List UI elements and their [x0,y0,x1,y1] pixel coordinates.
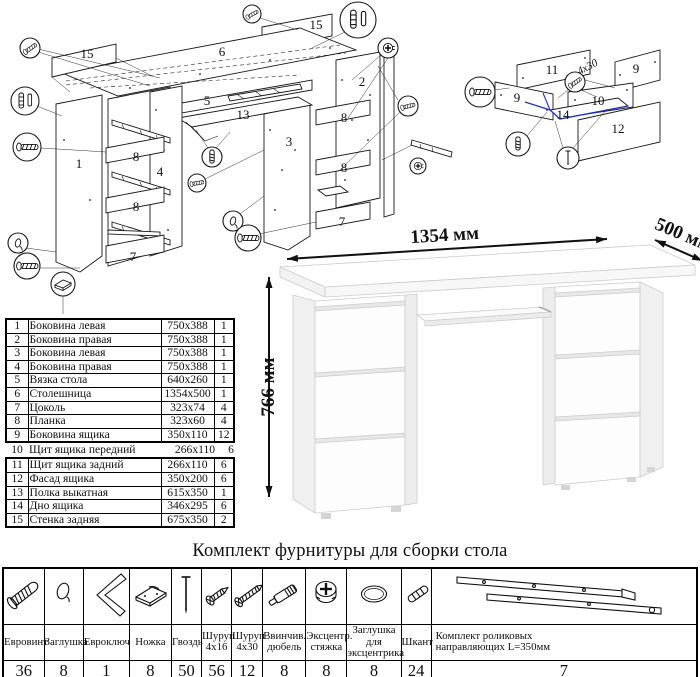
svg-text:9: 9 [514,90,521,105]
parts-row: 1Боковина левая750x3881 [6,319,234,333]
parts-cell-qty: 1 [214,347,234,361]
parts-cell-qty: 1 [214,486,234,500]
left-pedestal-inner-wall [405,294,417,505]
parts-cell-num: 12 [6,472,28,486]
hardware-item-name: Комплект роликовых направляющих L=350мм [431,625,697,661]
parts-cell-size: 323x74 [161,401,214,415]
svg-text:15: 15 [310,17,323,32]
parts-cell-name: Полка выкатная [28,486,161,500]
assembly-instruction-sheet: 15 6 15 2 1 4 3 5 13 8 8 8 8 7 7 [0,0,700,677]
hardware-item-qty: 8 [347,660,401,677]
hardware-item-name: Евроключ [83,625,129,661]
svg-text:14: 14 [557,107,571,122]
parts-row: 11Щит ящика задний266x1106 [6,458,234,472]
drawer-slides-icon [431,568,697,625]
parts-table-bottom: 11Щит ящика задний266x110612Фасад ящика3… [5,457,235,528]
desk-foot [321,513,331,519]
parts-row: 2Боковина правая750x3881 [6,333,234,347]
parts-cell-size: 615x350 [161,486,214,500]
parts-cell-qty: 2 [214,513,234,527]
parts-table-row-10: 10Щит ящика передний266x1106 [5,443,241,457]
hardware-item-qty: 8 [263,660,306,677]
parts-cell-size: 750x388 [161,360,214,374]
svg-text:15: 15 [81,46,94,61]
parts-row: 13Полка выкатная615x3501 [6,486,234,500]
assembled-desk-render: 1354 мм 500 мм 766 мм [255,215,700,545]
parts-cell-qty: 6 [214,458,234,472]
parts-cell-size: 346x295 [161,500,214,514]
exploded-drawer-diagram: 11 9 9 10 14 12 4x30 [455,40,700,235]
part-drawer-side-left [495,82,553,120]
hardware-item-qty: 12 [232,660,263,677]
parts-row: 14Дно ящика346x2956 [6,500,234,514]
hardware-item-name: Ножка [129,625,171,661]
svg-text:9: 9 [633,61,640,76]
right-pedestal-side [640,282,663,477]
svg-text:12: 12 [612,121,625,136]
parts-cell-name: Стенка задняя [28,513,161,527]
parts-row: 3Боковина левая750x3881 [6,347,234,361]
parts-cell-size: 323x60 [161,415,214,429]
svg-text:8: 8 [133,149,140,164]
cap-icon [44,568,83,625]
parts-row: 6Столешница1354x5001 [6,387,234,401]
parts-cell-num: 9 [6,428,28,442]
hardware-item-name: Гвоздь [171,625,201,661]
hardware-item-qty: 56 [202,660,232,677]
parts-cell-qty: 6 [221,443,241,457]
parts-table-top: 1Боковина левая750x38812Боковина правая7… [5,318,235,443]
hardware-item-qty: 24 [401,660,431,677]
parts-cell-size: 675x350 [161,513,214,527]
parts-row: 12Фасад ящика350x2006 [6,472,234,486]
parts-cell-size: 750x388 [161,347,214,361]
parts-cell-qty: 1 [214,360,234,374]
cam-lock-icon [306,568,347,625]
width-dimension-label: 1354 мм [410,223,480,248]
parts-cell-name: Фасад ящика [28,472,161,486]
hardware-item-name: Шуруп 4x30 [232,625,263,661]
hex-key-icon [83,568,129,625]
nail-icon [171,568,201,625]
svg-text:8: 8 [341,110,348,125]
parts-cell-num: 8 [6,415,28,429]
svg-text:5: 5 [204,93,211,108]
parts-cell-num: 2 [6,333,28,347]
hardware-kit-table: ЕвровинтЗаглушкаЕвроключНожкаГвоздьШуруп… [2,567,698,677]
svg-text:10: 10 [592,93,605,108]
hardware-item-qty: 1 [83,660,129,677]
parts-cell-num: 15 [6,513,28,527]
euro-screw-icon [3,568,44,625]
parts-cell-size: 350x110 [161,428,214,442]
parts-cell-size: 1354x500 [161,387,214,401]
parts-cell-num: 11 [6,458,28,472]
svg-text:6: 6 [219,44,226,59]
hardware-item-qty: 50 [171,660,201,677]
svg-text:1: 1 [76,156,83,171]
parts-cell-name: Дно ящика [28,500,161,514]
hardware-item-qty: 36 [3,660,44,677]
parts-cell-name: Цоколь [28,401,161,415]
desk-foot [627,477,636,482]
parts-row: 5Вязка стола640x2601 [6,374,234,388]
hardware-item-name: Шкант [401,625,431,661]
svg-text:13: 13 [237,107,250,122]
svg-text:7: 7 [130,249,137,264]
parts-cell-name: Боковина левая [28,319,161,333]
wood-dowel-icon [401,568,431,625]
screw-long-icon [232,568,263,625]
hardware-item-name: Ввинчив. дюбель [263,625,306,661]
parts-cell-name: Боковина левая [28,347,161,361]
parts-row: 4Боковина правая750x3881 [6,360,234,374]
hardware-item-qty: 8 [129,660,171,677]
parts-cell-num: 3 [6,347,28,361]
parts-cell-name: Столешница [28,387,161,401]
parts-cell-qty: 6 [214,500,234,514]
height-dimension-label: 766 мм [258,357,279,416]
left-pedestal-side [293,295,315,513]
hardware-item-qty: 8 [306,660,347,677]
parts-cell-qty: 4 [214,415,234,429]
parts-cell-name: Боковина правая [28,360,161,374]
parts-cell-num: 7 [6,401,28,415]
hardware-item-name: Заглушка [44,625,83,661]
svg-text:2: 2 [359,74,366,89]
parts-cell-size: 750x388 [161,333,214,347]
parts-cell-qty: 1 [214,319,234,333]
foot-icon [129,568,171,625]
parts-cell-name: Щит ящика передний [29,443,169,457]
screw-short-icon [202,568,232,625]
parts-cell-num: 5 [6,374,28,388]
part-side-panel-1 [56,95,102,272]
parts-cell-size: 266x110 [161,458,214,472]
parts-cell-name: Планка [28,415,161,429]
hardware-item-name: Евровинт [3,625,44,661]
parts-row: 9Боковина ящика350x11012 [6,428,234,442]
parts-cell-name: Щит ящика задний [28,458,161,472]
svg-text:11: 11 [546,62,559,77]
hardware-item-name: Эксцентр. стяжка [306,625,347,661]
parts-cell-num: 14 [6,500,28,514]
left-pedestal-front [315,295,405,513]
hardware-item-name: Шуруп 4x16 [202,625,232,661]
parts-cell-qty: 1 [214,333,234,347]
hardware-kit-title: Комплект фурнитуры для сборки стола [0,541,700,562]
hardware-item-name: Заглушка для эксцентрика [347,625,401,661]
svg-text:4: 4 [157,164,164,179]
cam-cap-icon [347,568,401,625]
part-slide-rail [411,140,452,157]
svg-text:8: 8 [341,160,348,175]
svg-text:8: 8 [133,199,140,214]
parts-cell-size: 350x200 [161,472,214,486]
parts-cell-size: 266x110 [169,443,221,457]
parts-row: 8Планка323x604 [6,415,234,429]
parts-row: 7Цоколь323x744 [6,401,234,415]
parts-cell-qty: 12 [214,428,234,442]
parts-cell-num: 6 [6,387,28,401]
parts-cell-name: Боковина ящика [28,428,161,442]
parts-list: 1Боковина левая750x38812Боковина правая7… [5,318,235,528]
parts-cell-num: 4 [6,360,28,374]
parts-cell-num: 1 [6,319,28,333]
part-side-panel-4 [150,86,182,256]
parts-cell-name: Боковина правая [28,333,161,347]
right-pedestal-front [555,282,640,485]
parts-cell-name: Вязка стола [28,374,161,388]
hardware-item-qty: 7 [431,660,697,677]
parts-cell-size: 640x260 [161,374,214,388]
parts-cell-num: 13 [6,486,28,500]
dowel-screw-icon [263,568,306,625]
part-side-panel-2b [384,52,394,217]
parts-cell-qty: 1 [214,387,234,401]
parts-row: 15Стенка задняя675x3502 [6,513,234,527]
parts-cell-qty: 1 [214,374,234,388]
parts-cell-qty: 6 [214,472,234,486]
svg-text:3: 3 [286,134,293,149]
parts-cell-num: 10 [5,443,29,457]
desk-foot [561,485,570,490]
hardware-item-qty: 8 [44,660,83,677]
parts-cell-size: 750x388 [161,319,214,333]
desk-foot [391,506,401,512]
desk-foot [647,467,655,472]
parts-cell-qty: 4 [214,401,234,415]
